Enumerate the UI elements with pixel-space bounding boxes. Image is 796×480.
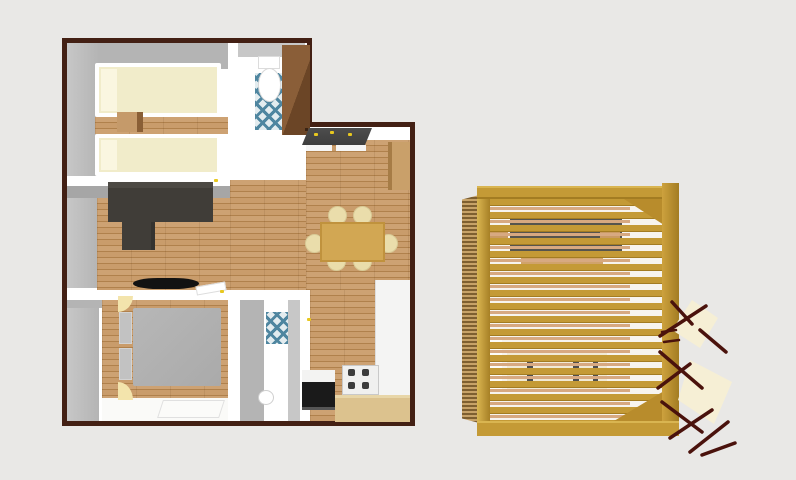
trees (0, 0, 796, 480)
render-canvas (0, 0, 796, 480)
